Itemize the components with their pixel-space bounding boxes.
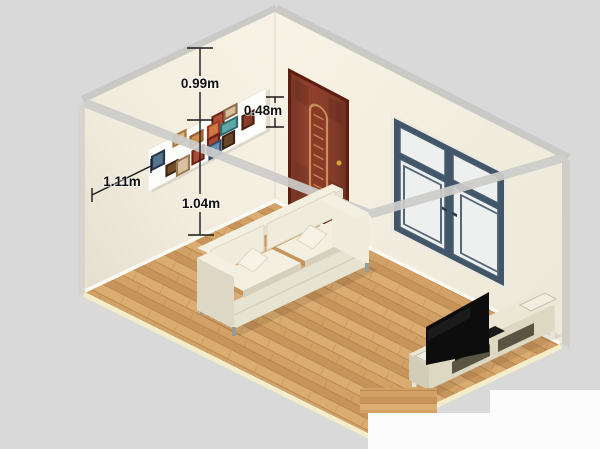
white-patch xyxy=(368,413,600,449)
white-patch xyxy=(490,390,600,414)
sofa-leg xyxy=(365,263,369,272)
dim-label-0-48m: 0.48m xyxy=(244,103,282,118)
sofa-leg xyxy=(232,327,236,336)
right-wall-end-face xyxy=(562,157,570,348)
dim-label-1-11m: 1.11m xyxy=(103,174,141,189)
door-knob xyxy=(336,160,341,165)
dim-label-1-04m: 1.04m xyxy=(182,196,220,211)
room-render: 0.99m 0.48m 1.11m 1.04m xyxy=(0,0,600,449)
left-wall-end-face xyxy=(78,102,85,296)
dim-label-0-99m: 0.99m xyxy=(181,76,219,91)
wood-patch xyxy=(360,388,437,413)
